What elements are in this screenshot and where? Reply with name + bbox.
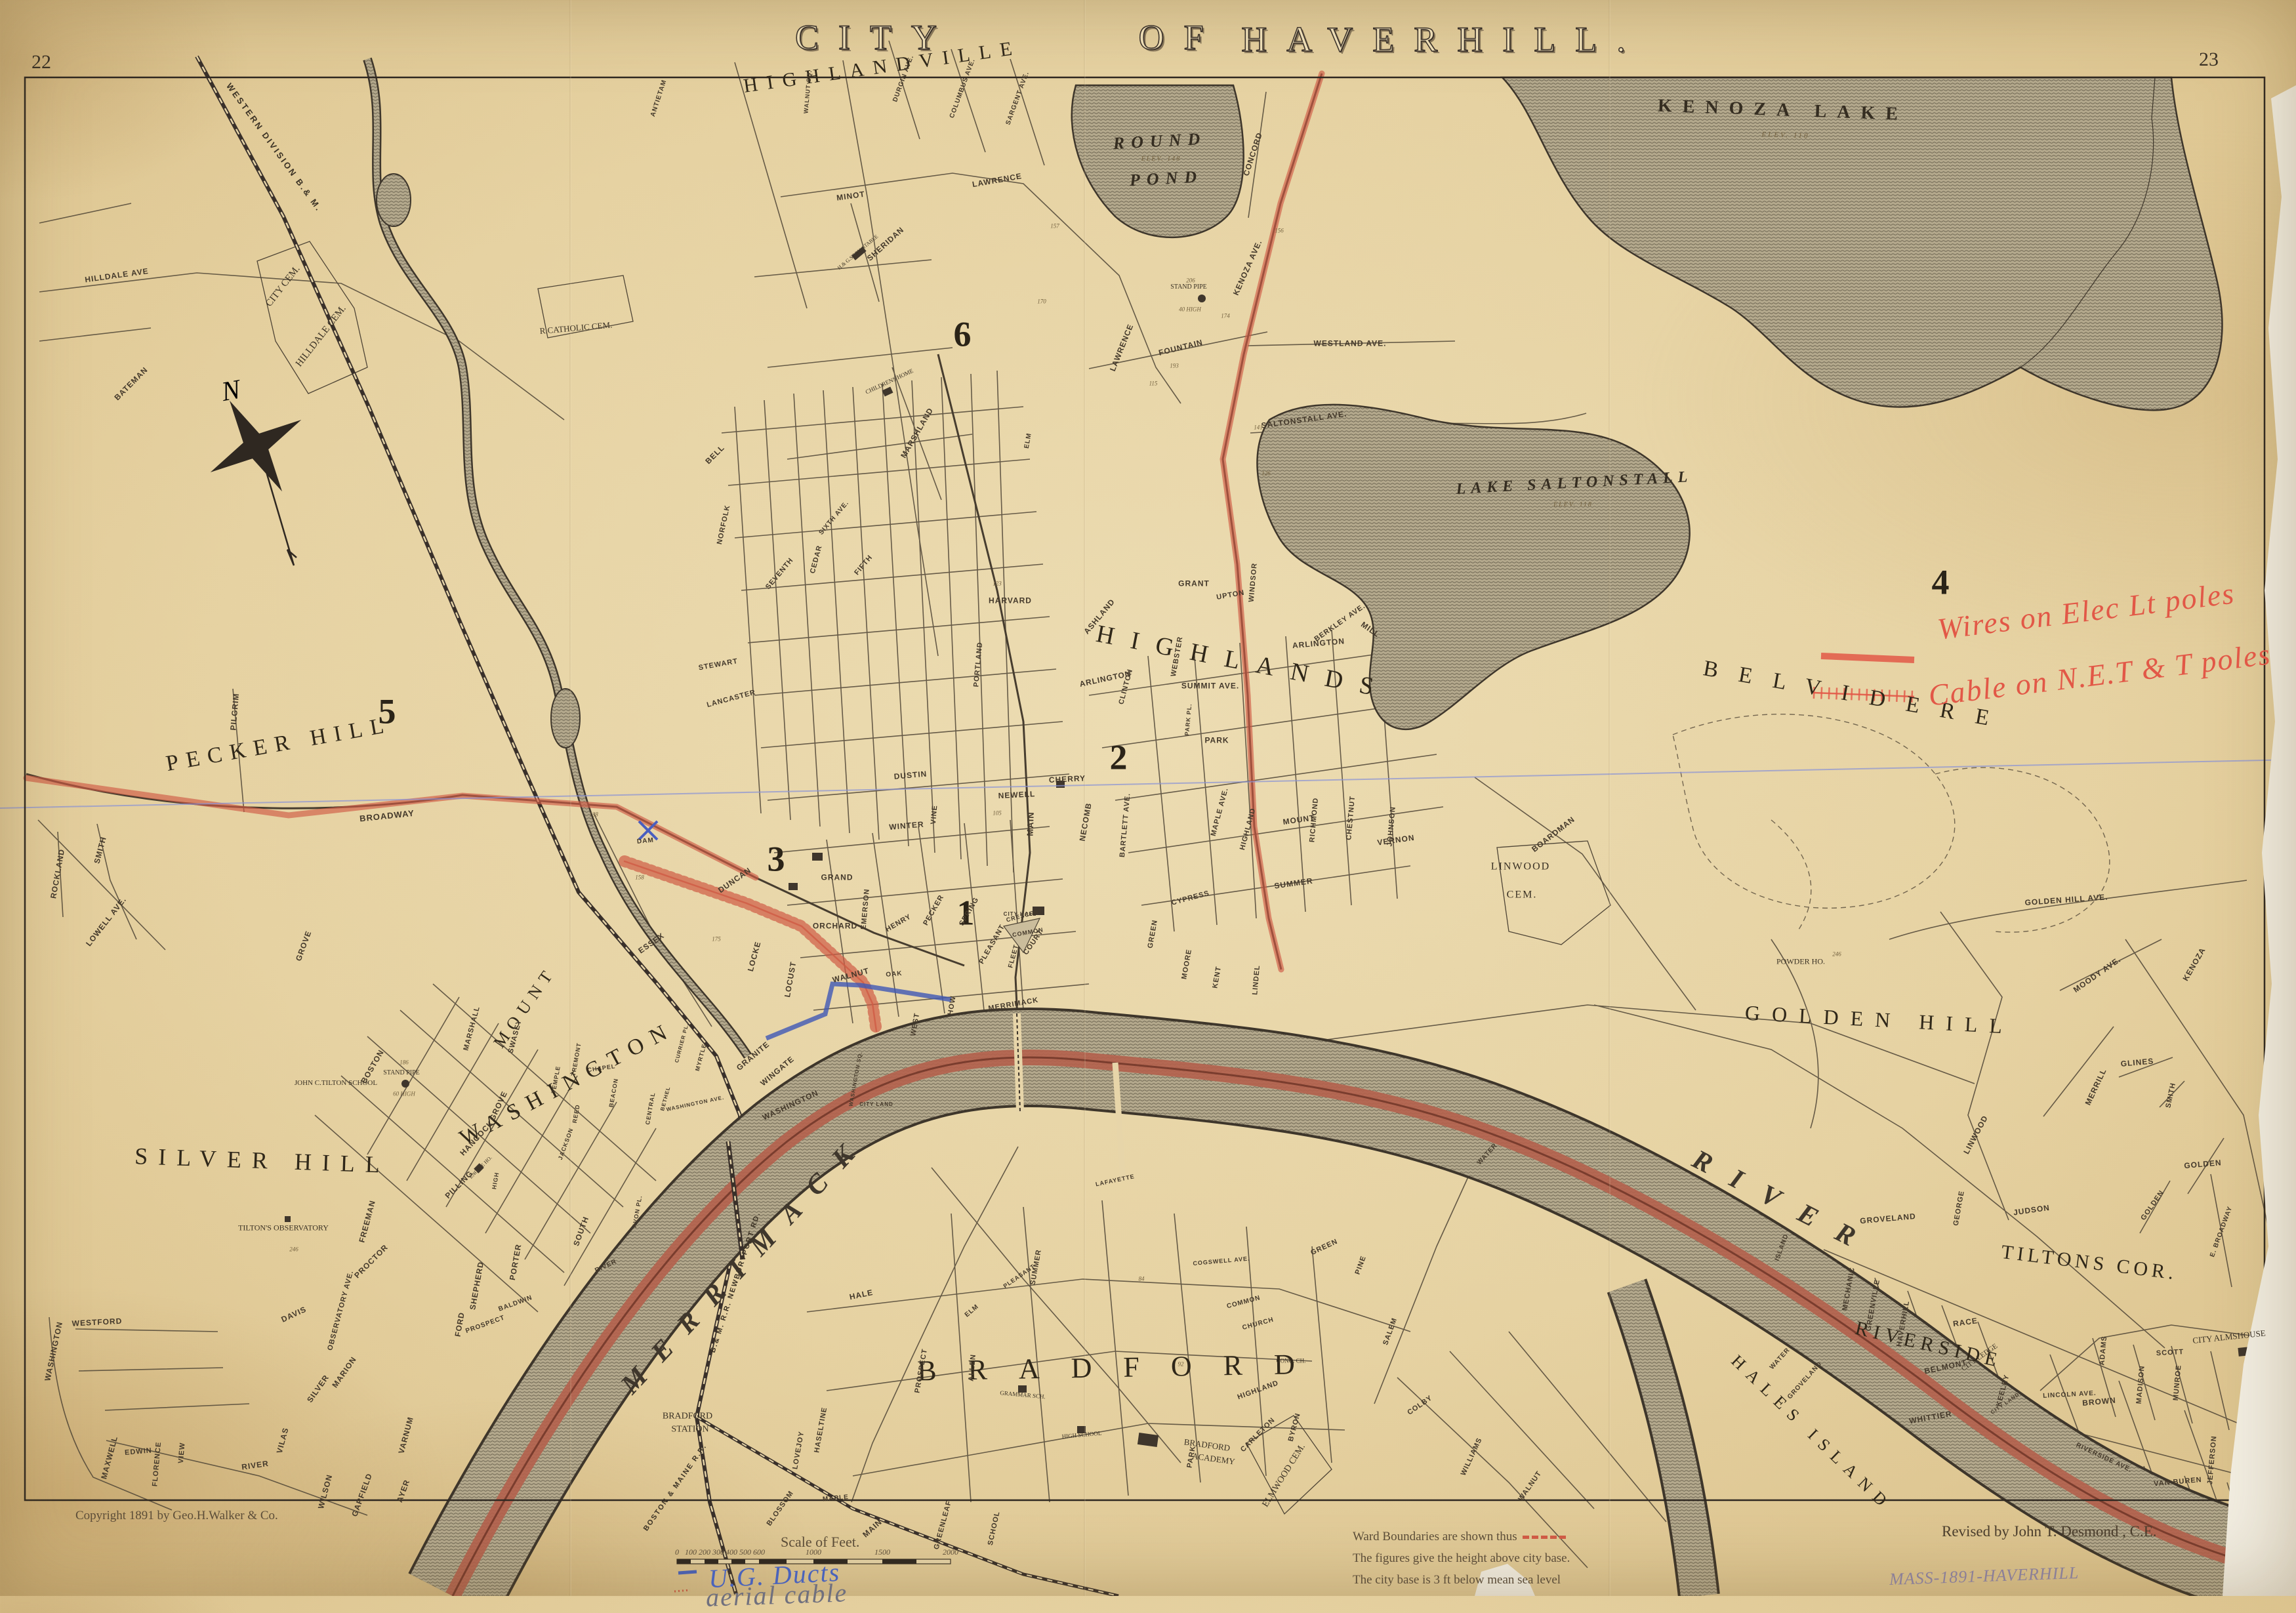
map-sheet: { "page": {"left_number":"22","right_num… <box>0 0 2296 1596</box>
copyright-line: Copyright 1891 by Geo.H.Walker & Co. <box>75 1509 278 1523</box>
revised-by-line: Revised by John T. Desmond , C.E. <box>1942 1523 2157 1540</box>
scale-tick: 100 <box>685 1547 697 1557</box>
red-annotation-legend <box>1813 656 1914 697</box>
note-ward-boundaries: Ward Boundaries are shown thus <box>1353 1530 1570 1544</box>
little-river <box>367 59 748 1056</box>
blue-annotations <box>0 760 2296 1591</box>
compass-rose <box>184 375 328 518</box>
note-figures: The figures give the height above city b… <box>1353 1551 1570 1566</box>
round-pond-shape <box>1072 85 1244 237</box>
page-number-left: 22 <box>31 51 51 73</box>
map-canvas <box>0 0 2296 1596</box>
map-title-of: OF <box>1138 17 1223 58</box>
map-title-haverhill: HAVERHILL. <box>1241 19 1645 60</box>
scale-tick: 200 <box>699 1547 710 1557</box>
page-number-right: 23 <box>2199 49 2219 71</box>
scale-tick: 1000 <box>806 1547 821 1557</box>
scale-tick: 600 <box>753 1547 765 1557</box>
scale-tick: 2000 <box>943 1547 958 1557</box>
lake-saltonstall-shape <box>1257 405 1689 729</box>
scale-bar <box>677 1559 951 1564</box>
scale-tick: 0 <box>675 1547 679 1557</box>
belvidere-drives <box>1673 714 2110 932</box>
scale-tick: 300 <box>712 1547 724 1557</box>
compass-needle <box>264 463 297 565</box>
scale-tick: 1500 <box>874 1547 890 1557</box>
scale-tick: 400 <box>726 1547 737 1557</box>
map-title-city: CITY <box>795 17 956 58</box>
scale-tick: 500 <box>739 1547 751 1557</box>
note-city-base: The city base is 3 ft below mean sea lev… <box>1353 1573 1570 1587</box>
ward-boundary-sample <box>1523 1536 1566 1539</box>
legend-notes: Ward Boundaries are shown thus The figur… <box>1353 1530 1570 1595</box>
